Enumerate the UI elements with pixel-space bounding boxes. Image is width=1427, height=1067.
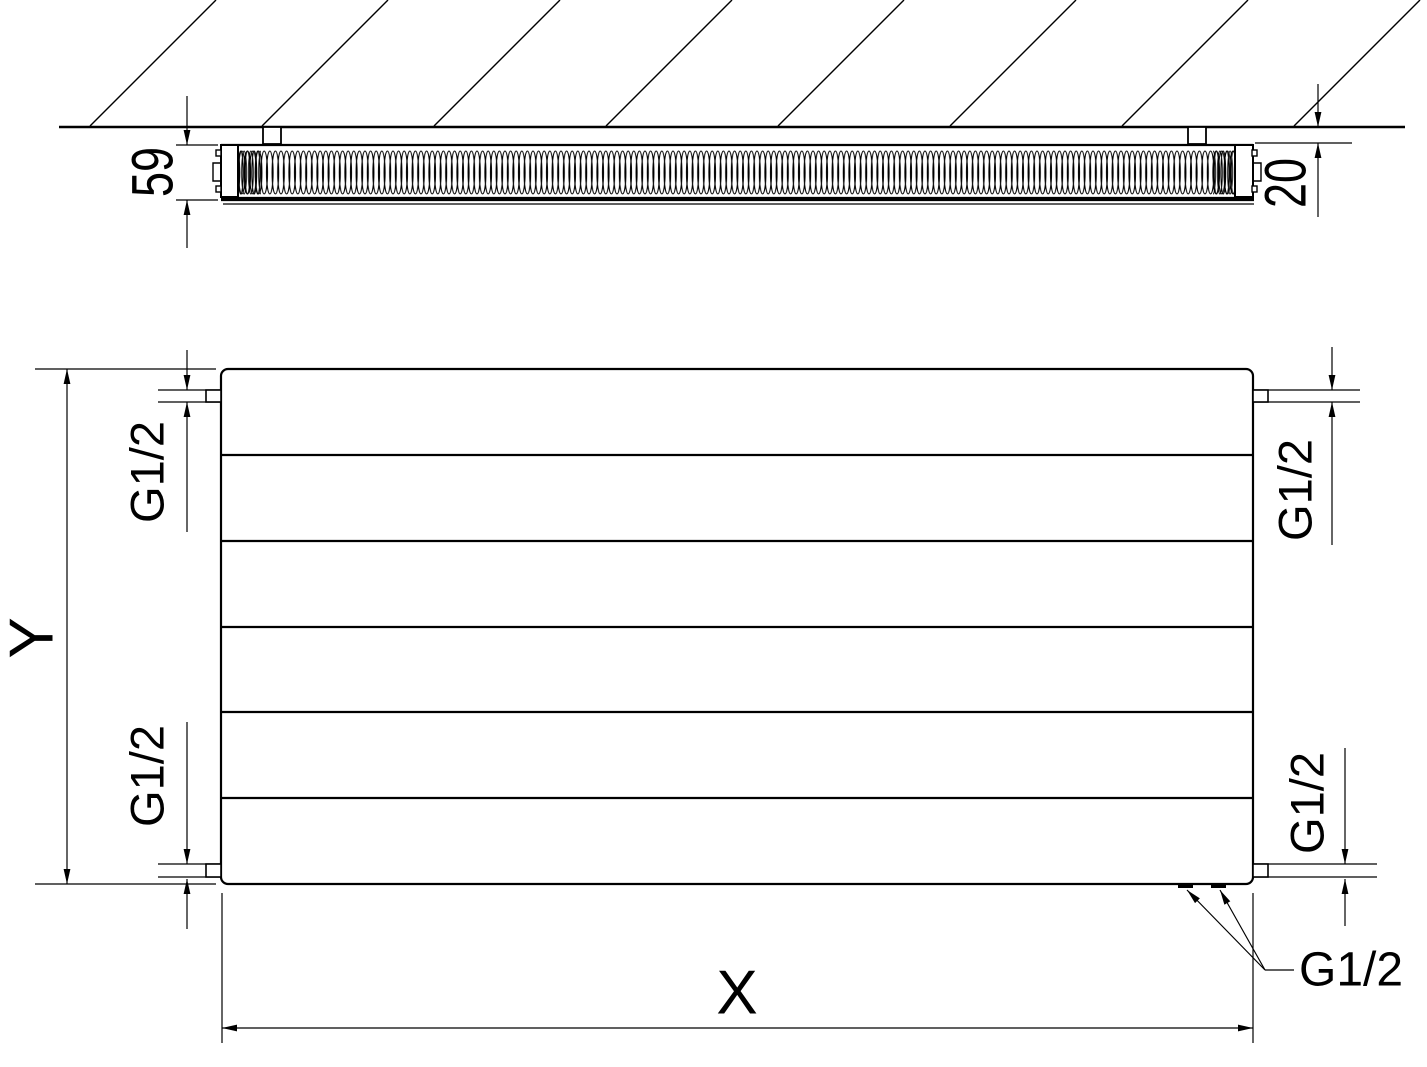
height-label: Y xyxy=(0,617,67,658)
radiator-cross-section xyxy=(213,145,1261,204)
thread-bottom-right-label: G1/2 xyxy=(1281,752,1334,854)
convector-fins xyxy=(239,149,1235,196)
connection-stub-bottom-left xyxy=(158,864,221,877)
end-cap-left xyxy=(221,145,238,197)
end-cap-left-details xyxy=(213,150,221,192)
side-view: 59 20 xyxy=(59,0,1420,248)
radiator-technical-drawing: 59 20 xyxy=(0,0,1427,1067)
thread-bottom-left-label: G1/2 xyxy=(121,725,174,827)
bottom-connection-tab-right xyxy=(1211,884,1226,888)
wall-distance-label: 20 xyxy=(1254,158,1319,208)
wall-hatching xyxy=(90,0,1420,126)
thread-bottom-connections-label: G1/2 xyxy=(1299,944,1403,997)
depth-label: 59 xyxy=(121,147,186,197)
mounting-bracket-left xyxy=(263,127,281,144)
convector-fins-end-right xyxy=(1213,149,1235,196)
connection-stub-top-right xyxy=(1253,390,1360,402)
bottom-connection-tab-left xyxy=(1178,884,1193,888)
width-label: X xyxy=(716,959,757,1028)
thread-top-right-label: G1/2 xyxy=(1269,439,1322,541)
convector-fins-end-left xyxy=(239,149,261,196)
drawing-svg: 59 20 xyxy=(0,0,1427,1067)
end-cap-right xyxy=(1235,145,1253,197)
bottom-connections: G1/2 xyxy=(1178,884,1403,997)
thread-top-left-label: G1/2 xyxy=(121,421,174,523)
mounting-bracket-right xyxy=(1188,127,1206,144)
leader-lines xyxy=(1187,890,1294,970)
front-view: G1/2 G1/2 G1/2 G1/2 Y xyxy=(0,347,1403,1043)
connection-stub-bottom-right xyxy=(1253,864,1377,877)
connection-stub-top-left xyxy=(158,390,221,402)
